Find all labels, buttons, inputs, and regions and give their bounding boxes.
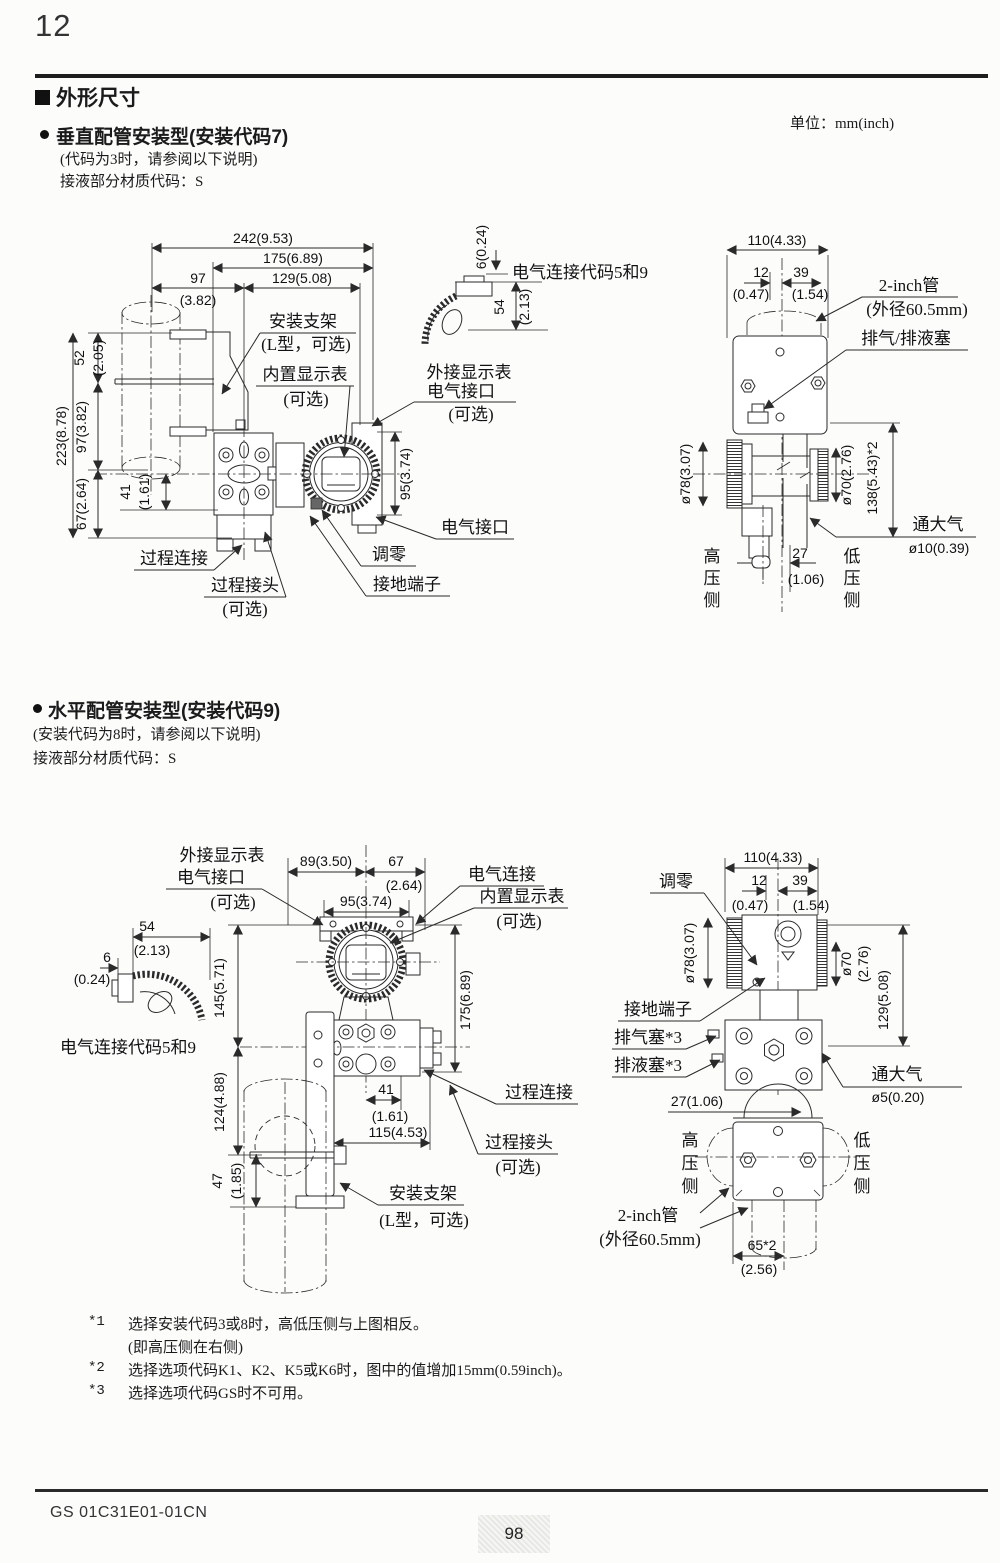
- dim-54: 54: [139, 918, 155, 934]
- label-vent: 排气塞*3: [614, 1028, 682, 1047]
- label-display-optional: (可选): [283, 390, 328, 409]
- horizontal-mount-front-view: 89(3.50) 67 (2.64) 95(3.74) 145(5.71) 17…: [60, 845, 578, 1293]
- horizontal-mount-side-view: 110(4.33) 12 (0.47) 39 (1.54) ø78(3.07) …: [599, 849, 962, 1277]
- label-conn: 电气连接: [468, 865, 536, 884]
- mounting-bracket: [115, 330, 248, 436]
- label-hp-3: 侧: [682, 1177, 699, 1196]
- label-lp-3: 侧: [844, 591, 861, 610]
- dim-97: 97: [190, 270, 206, 286]
- label-hp-2: 压: [682, 1154, 699, 1173]
- bracket-plate: [733, 1122, 823, 1200]
- label-conduit-note: 电气连接代码5和9: [60, 1038, 196, 1057]
- label-vent-plug: 排气/排液塞: [861, 329, 951, 348]
- label-hp-3: 侧: [704, 591, 721, 610]
- conduit-elbow: [425, 296, 456, 346]
- bullet-icon: [40, 130, 49, 139]
- section2-title: 水平配管安装型(安装代码9): [48, 696, 280, 723]
- conduit-detail: 电气连接代码5和9 6(0.24) 54 (2.13): [425, 225, 648, 346]
- label-zero: 调零: [659, 872, 693, 891]
- label-process: 过程连接: [505, 1083, 573, 1102]
- dim-27: 27(1.06): [671, 1093, 723, 1109]
- dim-223: 223(8.78): [53, 406, 69, 466]
- label-extdisp-optional: (可选): [210, 893, 255, 912]
- drawing-horizontal-mount: 89(3.50) 67 (2.64) 95(3.74) 145(5.71) 17…: [0, 830, 1000, 1300]
- label-adapter-optional: (可选): [222, 600, 267, 619]
- dim-6-inch: (0.24): [74, 971, 111, 987]
- dim-47-inch: (1.85): [228, 1163, 244, 1200]
- label-lp-1: 低: [844, 547, 861, 566]
- page-title: 外形尺寸: [56, 82, 140, 112]
- label-lp-3: 侧: [854, 1177, 871, 1196]
- dim-12-inch: (0.47): [732, 897, 769, 913]
- footnote-2-marker: *2: [88, 1359, 105, 1376]
- label-hp-1: 高: [682, 1131, 699, 1150]
- footnote-1-line1: 选择安装代码3或8时，高低压侧与上图相反。: [128, 1313, 428, 1334]
- footnote-3-marker: *3: [88, 1382, 105, 1399]
- dim-54: 54: [491, 299, 507, 315]
- label-extdisp: 外接显示表: [427, 363, 512, 382]
- dim-67: 67: [388, 853, 404, 869]
- label-zero: 调零: [372, 545, 406, 564]
- dim-115: 115(4.53): [369, 1124, 428, 1140]
- dim-d78: ø78(3.07): [677, 444, 693, 505]
- dim-145: 145(5.71): [211, 958, 227, 1018]
- label-display-optional: (可选): [496, 912, 541, 931]
- label-extdisp2: 电气接口: [177, 868, 245, 887]
- label-hp-1: 高: [704, 547, 721, 566]
- mounting-pipe: [122, 243, 180, 495]
- capsule-manifold: [708, 1020, 823, 1118]
- label-ground: 接地端子: [624, 1000, 692, 1019]
- label-pipe: 2-inch管: [879, 276, 939, 295]
- dim-97v: 97(3.82): [73, 401, 89, 453]
- dim-47: 47: [209, 1173, 225, 1189]
- dim-39-inch: (1.54): [792, 286, 829, 302]
- label-bracket-note: (L型，可选): [261, 335, 351, 354]
- label-lp-1: 低: [854, 1131, 871, 1150]
- label-conn: 电气接口: [441, 518, 509, 537]
- dim-d70: ø70(2.76): [838, 445, 854, 506]
- capsule-manifold: [240, 1020, 470, 1076]
- dim-27: 27: [792, 545, 808, 561]
- dim-6: 6: [103, 949, 111, 965]
- dim-124: 124(4.88): [211, 1072, 227, 1132]
- label-pipe-od: (外径60.5mm): [599, 1230, 701, 1249]
- drawing-vertical-mount: 242(9.53) 175(6.89) 97 (3.82) 129(5.08) …: [0, 215, 1000, 650]
- label-atm: 通大气: [872, 1065, 923, 1084]
- label-adapter: 过程接头: [211, 576, 279, 595]
- bullet-icon: [33, 704, 42, 713]
- dim-110: 110(4.33): [748, 232, 807, 248]
- footnote-1-line2: (即高压侧在右侧): [128, 1336, 243, 1357]
- dim-41-inch: (1.61): [136, 474, 152, 511]
- dim-89: 89(3.50): [300, 853, 352, 869]
- top-rule: [35, 74, 988, 78]
- section2-note1: (安装代码为8时，请参阅以下说明): [33, 723, 261, 744]
- conduit-boss: [775, 921, 801, 947]
- label-bracket-note: (L型，可选): [379, 1211, 469, 1230]
- dim-67-inch: (2.64): [386, 877, 423, 893]
- dim-138: 138(5.43)*2: [864, 441, 880, 514]
- dim-12: 12: [753, 264, 769, 280]
- unit-label: 单位：mm(inch): [790, 112, 894, 133]
- callouts: 2-inch管 (外径60.5mm) 排气/排液塞 通大气 ø10(0.39) …: [704, 276, 977, 610]
- zero-adjust-screw: [311, 498, 322, 509]
- section-marker: [35, 90, 50, 105]
- section2-note2: 接液部分材质代码：S: [33, 747, 176, 768]
- dim-52-inch: (2.05): [90, 340, 106, 377]
- footnote-3-line1: 选择选项代码GS时不可用。: [128, 1382, 312, 1403]
- bracket-plate: [733, 336, 827, 434]
- dim-97-inch: (3.82): [180, 292, 217, 308]
- vertical-mount-side-view: 242(9.53) 175(6.89) 97 (3.82) 129(5.08) …: [53, 230, 516, 619]
- dim-129: 129(5.08): [875, 970, 891, 1030]
- conduit-elbow: [133, 974, 202, 1020]
- label-bracket: 安装支架: [389, 1184, 457, 1203]
- dim-39: 39: [793, 264, 809, 280]
- page-footer-number: 98: [478, 1515, 550, 1553]
- dim-41-inch: (1.61): [372, 1108, 409, 1124]
- dim-41: 41: [117, 484, 133, 500]
- dim-54-inch: (2.13): [516, 289, 532, 326]
- dim-39: 39: [792, 872, 808, 888]
- mounting-bracket: [250, 1012, 346, 1208]
- dim-41: 41: [378, 1081, 394, 1097]
- vertical-mount-front-view: 110(4.33) 12 (0.47) 39 (1.54) ø78(3.07) …: [677, 232, 976, 612]
- label-drain: 排液塞*3: [614, 1056, 682, 1075]
- label-pipe-od: (外径60.5mm): [866, 300, 968, 319]
- label-adapter: 过程接头: [485, 1133, 553, 1152]
- dim-129: 129(5.08): [272, 270, 332, 286]
- label-atm-dia: ø5(0.20): [872, 1089, 925, 1105]
- label-lp-2: 压: [844, 569, 861, 588]
- label-extdisp: 外接显示表: [180, 846, 265, 865]
- dim-110: 110(4.33): [744, 849, 803, 865]
- label-extdisp-optional: (可选): [448, 405, 493, 424]
- label-pipe: 2-inch管: [618, 1206, 678, 1225]
- section1-note2: 接液部分材质代码：S: [60, 170, 203, 191]
- label-lp-2: 压: [854, 1154, 871, 1173]
- label-bracket: 安装支架: [269, 312, 337, 331]
- label-adapter-optional: (可选): [495, 1158, 540, 1177]
- dim-d70: ø70: [838, 952, 854, 976]
- dim-95: 95(3.74): [397, 448, 413, 500]
- bottom-rule: [35, 1489, 988, 1492]
- dim-27-inch: (1.06): [788, 571, 825, 587]
- document-code: GS 01C31E01-01CN: [50, 1504, 207, 1522]
- label-extdisp2: 电气接口: [427, 382, 495, 401]
- dim-175: 175(6.89): [457, 970, 473, 1030]
- dim-175: 175(6.89): [263, 250, 323, 266]
- conduit-detail: 54 (2.13) 6 (0.24) 电气连接代码5和9: [60, 918, 210, 1057]
- page-number: 12: [35, 8, 71, 44]
- label-display: 内置显示表: [480, 887, 565, 906]
- label-display: 内置显示表: [263, 365, 348, 384]
- dim-6: 6(0.24): [473, 225, 489, 269]
- label-ground: 接地端子: [373, 575, 441, 594]
- label-process: 过程连接: [140, 549, 208, 568]
- section1-note1: (代码为3时，请参阅以下说明): [60, 148, 258, 169]
- dim-54-inch: (2.13): [134, 942, 171, 958]
- label-hp-2: 压: [704, 569, 721, 588]
- footnote-2-line1: 选择选项代码K1、K2、K5或K6时，图中的值增加15mm(0.59inch)。: [128, 1359, 572, 1380]
- dim-39-inch: (1.54): [793, 897, 830, 913]
- label-atm: 通大气: [913, 515, 964, 534]
- section1-title: 垂直配管安装型(安装代码7): [56, 122, 288, 149]
- dim-67: 67(2.64): [73, 478, 89, 530]
- dim-12-inch: (0.47): [733, 286, 770, 302]
- dim-242: 242(9.53): [233, 230, 293, 246]
- dim-65-inch: (2.56): [741, 1261, 778, 1277]
- label-conduit-note: 电气连接代码5和9: [512, 263, 648, 282]
- label-atm-dia: ø10(0.39): [909, 540, 970, 556]
- dim-d78: ø78(3.07): [681, 923, 697, 984]
- dim-d70-inch: (2.76): [855, 946, 871, 983]
- vent-drain-plug: [752, 404, 764, 412]
- dim-12: 12: [751, 872, 767, 888]
- footnote-1-marker: *1: [88, 1313, 105, 1330]
